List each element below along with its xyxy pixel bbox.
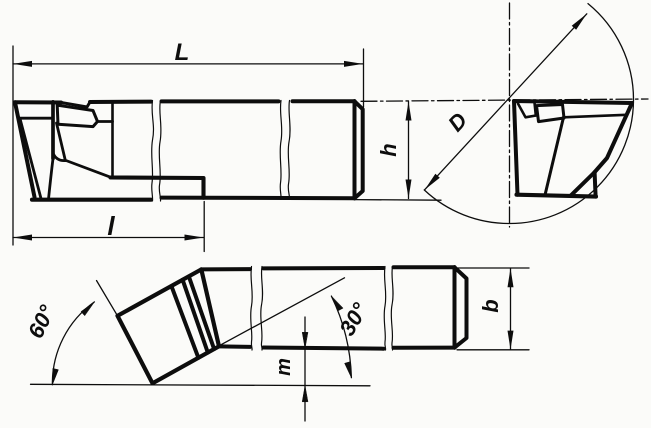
svg-text:l: l xyxy=(107,211,115,241)
svg-text:b: b xyxy=(478,299,503,312)
svg-text:m: m xyxy=(273,358,295,376)
svg-text:h: h xyxy=(376,143,401,156)
svg-text:30°: 30° xyxy=(334,298,372,339)
svg-text:L: L xyxy=(175,39,190,66)
svg-text:60°: 60° xyxy=(23,301,60,342)
svg-text:D: D xyxy=(443,107,472,136)
